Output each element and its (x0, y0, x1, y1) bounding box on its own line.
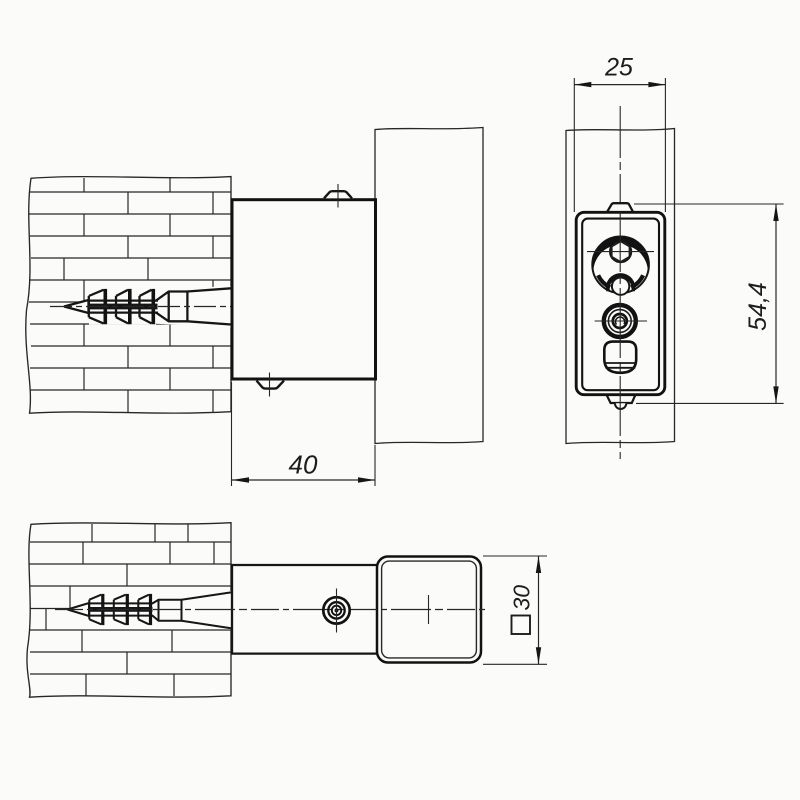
svg-text:54,4: 54,4 (744, 282, 772, 331)
svg-text:30: 30 (509, 585, 535, 611)
svg-text:40: 40 (289, 450, 318, 480)
svg-text:25: 25 (604, 54, 633, 82)
